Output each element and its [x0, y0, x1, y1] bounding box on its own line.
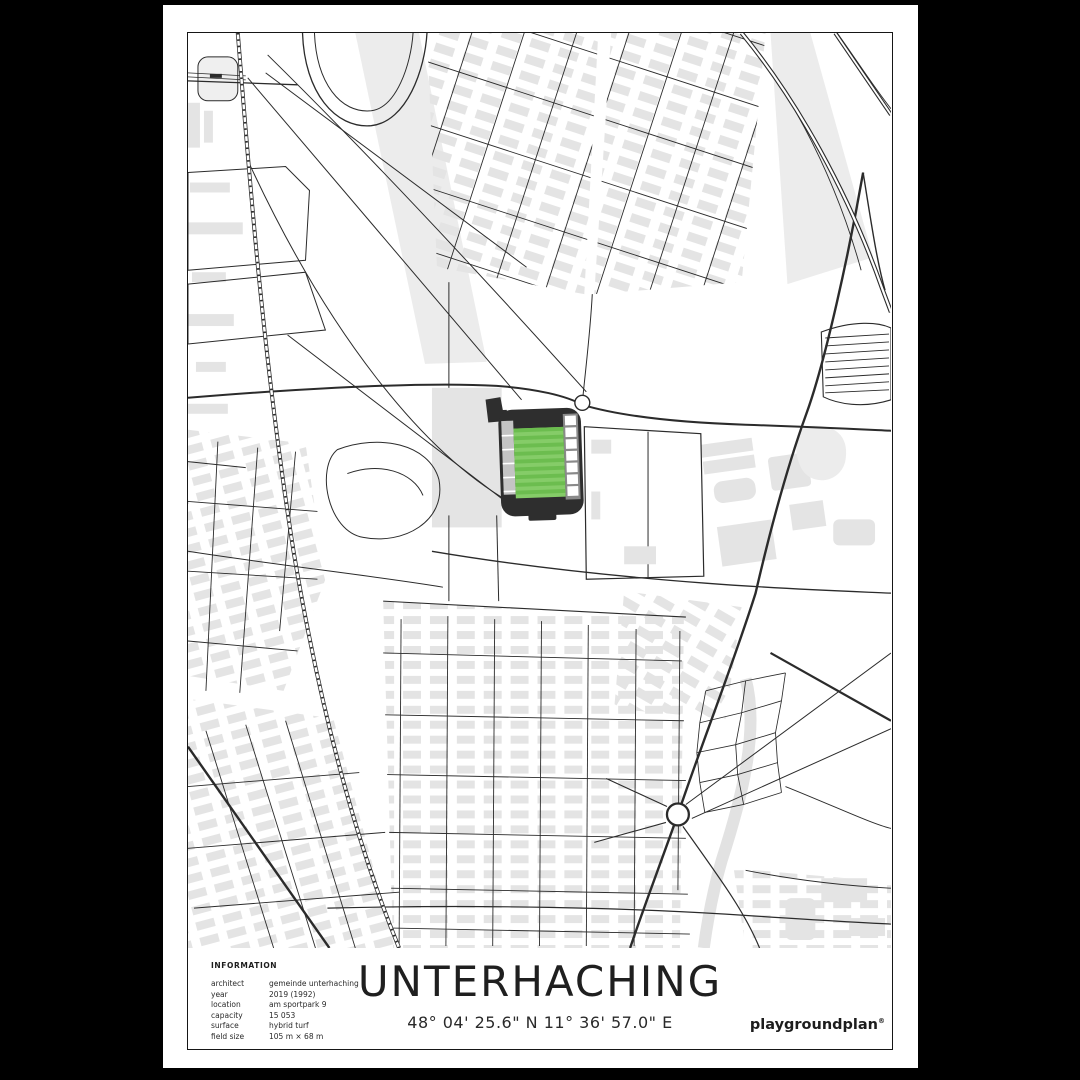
info-label: field size	[211, 1032, 269, 1043]
roundabout	[667, 803, 689, 825]
registered-mark: ®	[878, 1017, 885, 1025]
poster-title: UNTERHACHING	[188, 957, 892, 1006]
city-map	[188, 33, 891, 948]
info-value: 105 m × 68 m	[269, 1032, 323, 1043]
product-photo: INFORMATION architect gemeinde unterhach…	[0, 0, 1080, 1080]
brand-text: playgroundplan	[750, 1017, 878, 1033]
print-frame: INFORMATION architect gemeinde unterhach…	[187, 32, 893, 1050]
brand-logo: playgroundplan®	[750, 1017, 885, 1033]
junction-circle	[575, 395, 590, 410]
poster: INFORMATION architect gemeinde unterhach…	[163, 5, 918, 1068]
stadium-east-stand	[563, 413, 581, 499]
info-row: field size 105 m × 68 m	[211, 1032, 359, 1043]
stadium-pitch	[513, 427, 565, 498]
